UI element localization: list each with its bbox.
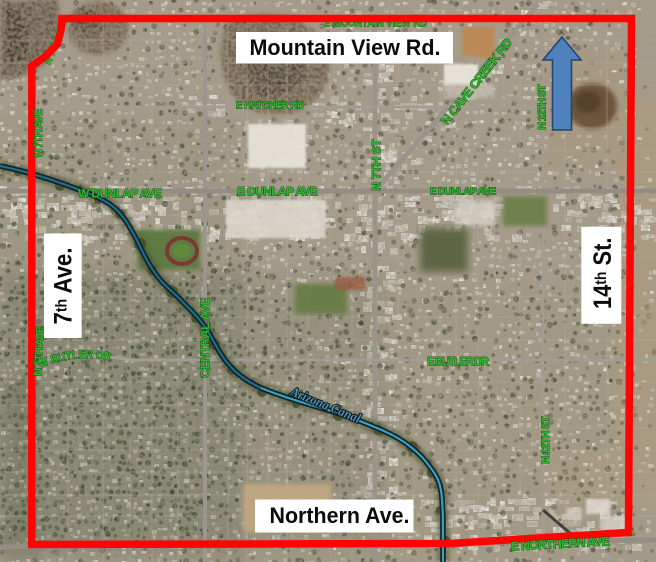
svg-text:Northern Ave.: Northern Ave. bbox=[270, 503, 410, 528]
svg-text:N 7TH AVE: N 7TH AVE bbox=[33, 109, 45, 158]
svg-text:CENTRAL AVE: CENTRAL AVE bbox=[198, 297, 212, 377]
svg-text:Mountain View Rd.: Mountain View Rd. bbox=[250, 35, 441, 60]
svg-text:N 12TH ST: N 12TH ST bbox=[540, 416, 552, 464]
svg-text:E HATCHER RD: E HATCHER RD bbox=[236, 101, 305, 112]
svg-text:N 12TH ST: N 12TH ST bbox=[537, 84, 549, 130]
svg-text:E BUTLER DR: E BUTLER DR bbox=[427, 357, 490, 369]
svg-text:E DUNLAP AVE: E DUNLAP AVE bbox=[430, 186, 497, 198]
svg-text:E DUNLAP AVE: E DUNLAP AVE bbox=[237, 185, 318, 199]
svg-text:7th Ave.: 7th Ave. bbox=[50, 248, 78, 325]
svg-text:N 7TH ST: N 7TH ST bbox=[370, 139, 384, 191]
svg-text:W DUNLAP AVE: W DUNLAP AVE bbox=[78, 187, 162, 201]
